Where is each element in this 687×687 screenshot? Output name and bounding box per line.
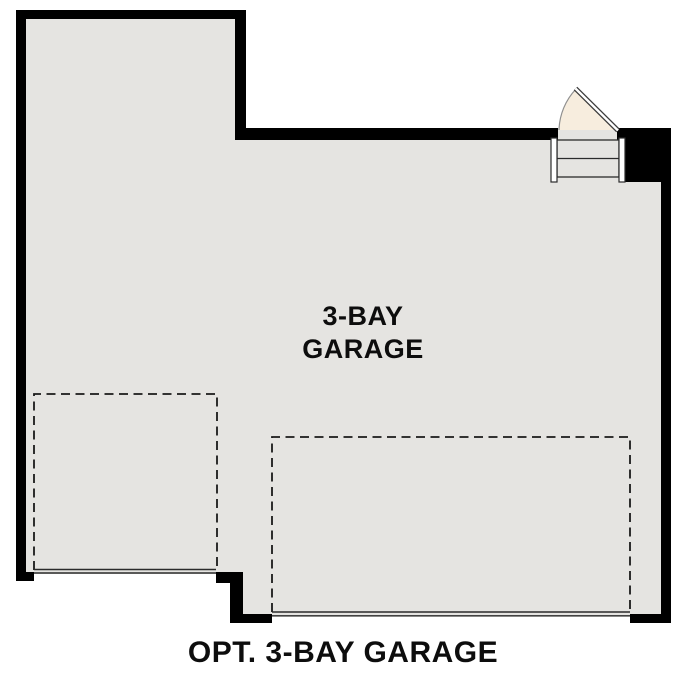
room-label-line2: GARAGE: [302, 334, 424, 364]
floor-plan-canvas: 3-BAY GARAGE OPT. 3-BAY GARAGE: [0, 0, 687, 687]
wall-top-left: [16, 10, 246, 19]
door-jamb-right: [619, 138, 625, 182]
floor-plan: 3-BAY GARAGE OPT. 3-BAY GARAGE: [0, 0, 687, 687]
wall-bottom-right: [630, 614, 671, 623]
wall-step-vertical-top: [235, 10, 246, 140]
wall-left: [16, 10, 26, 581]
door-jamb-left: [551, 138, 557, 182]
wall-right: [661, 128, 671, 623]
wall-bottom-left-nub: [16, 572, 34, 581]
room-label-line1: 3-BAY: [322, 301, 403, 331]
wall-top-main: [235, 128, 558, 140]
plan-caption: OPT. 3-BAY GARAGE: [188, 636, 498, 669]
wall-bottom-middle: [230, 614, 272, 623]
